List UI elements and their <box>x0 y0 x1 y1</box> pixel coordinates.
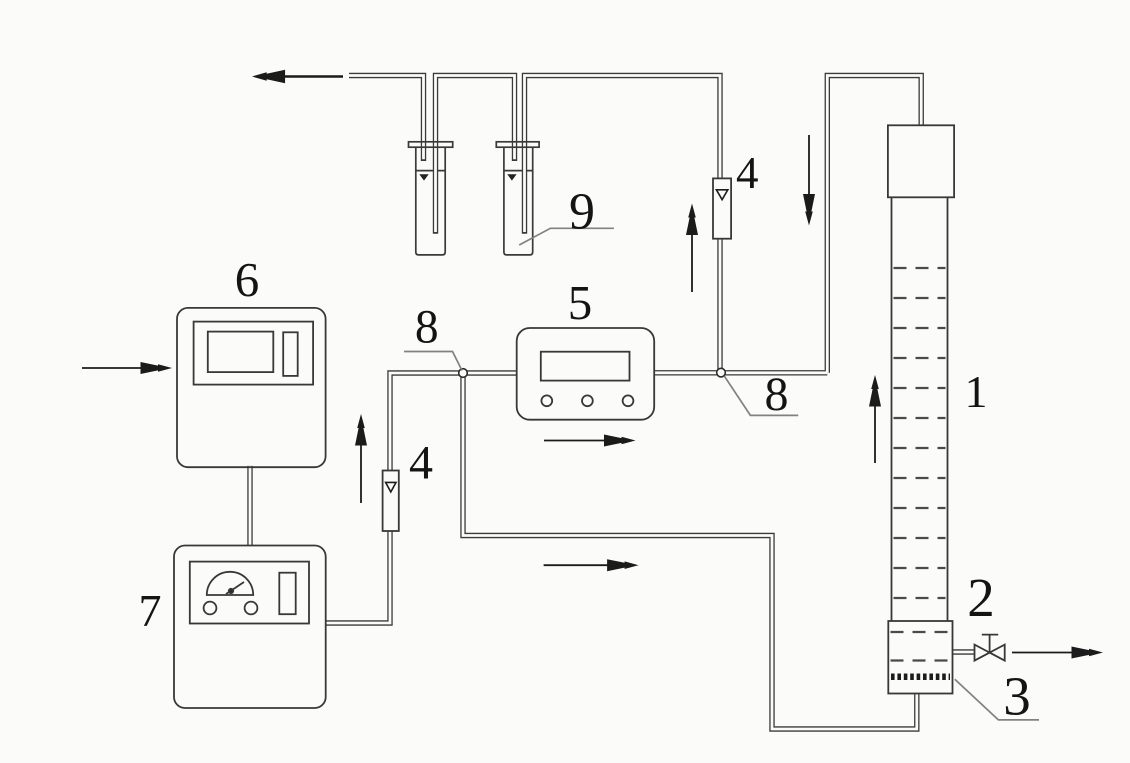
svg-text:4: 4 <box>409 437 433 490</box>
svg-text:9: 9 <box>569 184 595 241</box>
svg-text:1: 1 <box>965 366 988 417</box>
svg-text:6: 6 <box>235 252 260 307</box>
svg-text:2: 2 <box>967 567 995 628</box>
svg-text:8: 8 <box>415 302 439 354</box>
svg-text:7: 7 <box>139 585 162 636</box>
svg-text:4: 4 <box>736 148 759 198</box>
svg-text:5: 5 <box>568 275 593 330</box>
svg-text:3: 3 <box>1003 666 1031 727</box>
svg-text:8: 8 <box>765 368 789 421</box>
